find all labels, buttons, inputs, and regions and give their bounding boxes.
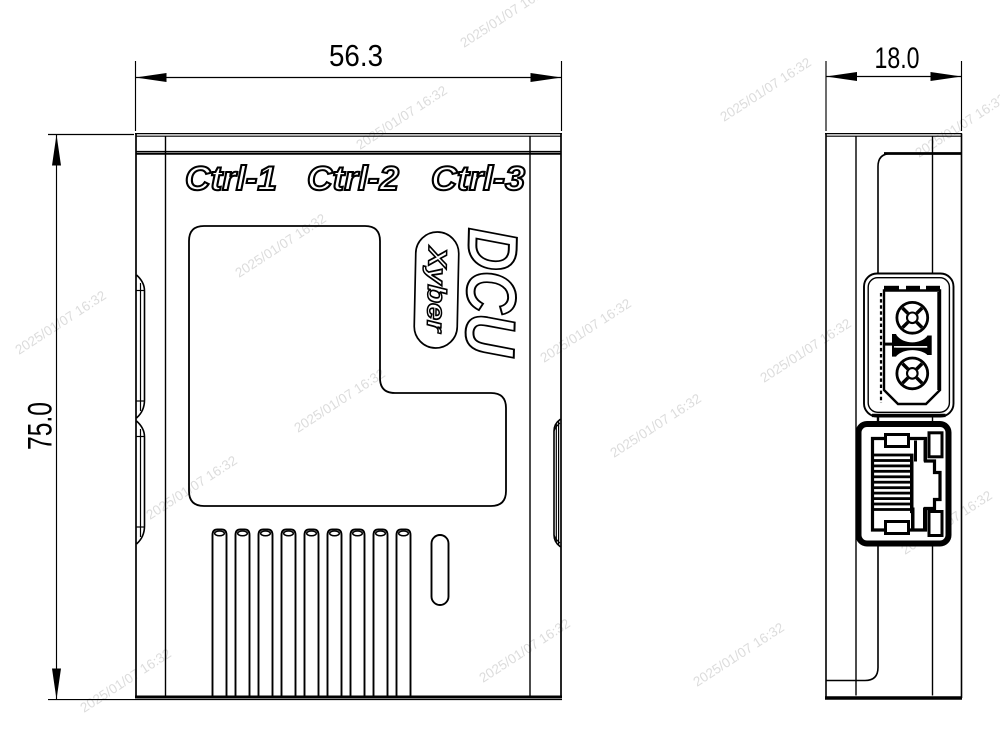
svg-text:56.3: 56.3 [329,38,383,73]
svg-text:Ctrl-1: Ctrl-1 [185,160,277,198]
svg-text:Xyber: Xyber [421,244,453,334]
svg-text:Ctrl-2: Ctrl-2 [307,160,399,198]
svg-text:75.0: 75.0 [22,402,60,450]
svg-text:18.0: 18.0 [875,42,920,75]
svg-text:DCU: DCU [451,227,532,358]
svg-text:Ctrl-3: Ctrl-3 [431,160,525,198]
